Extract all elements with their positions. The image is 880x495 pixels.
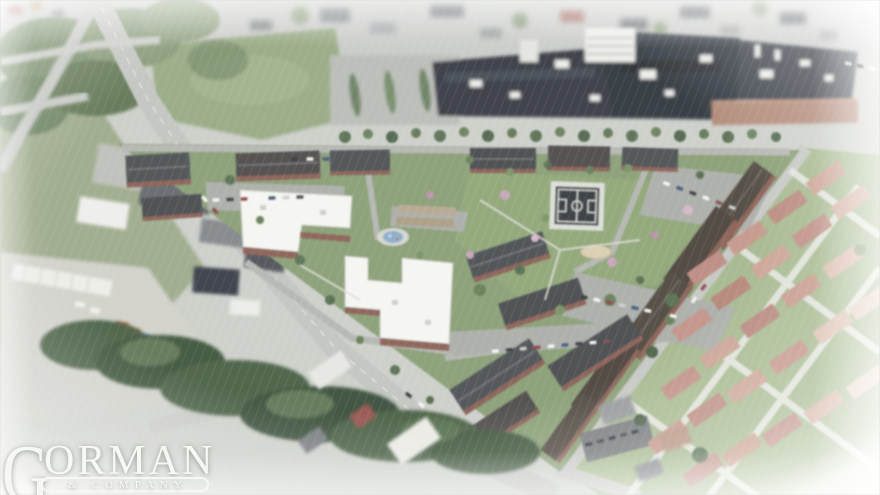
gorman-logo-tagline: & COMPANY bbox=[68, 479, 187, 491]
gorman-logo-wordmark: ORMAN bbox=[44, 440, 215, 482]
aerial-site-rendering bbox=[0, 0, 880, 495]
vignette-overlay bbox=[0, 0, 880, 495]
aerial-rendering-image: G ORMAN & COMPANY bbox=[0, 0, 880, 495]
gorman-logo-tagline-pill: & COMPANY bbox=[41, 477, 209, 492]
